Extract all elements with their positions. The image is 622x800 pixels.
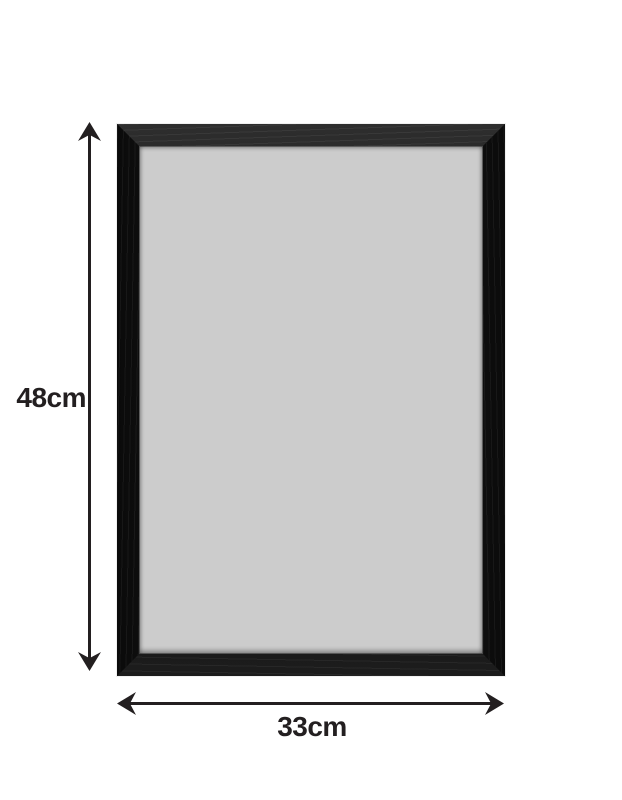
height-dimension-line bbox=[88, 130, 91, 663]
picture-frame bbox=[117, 124, 505, 676]
width-dimension-label: 33cm bbox=[262, 711, 362, 743]
height-dimension-label: 48cm bbox=[0, 382, 86, 414]
frame-opening bbox=[139, 146, 483, 654]
product-dimension-diagram: 48cm 33cm bbox=[0, 0, 622, 800]
width-dimension-line bbox=[125, 702, 496, 705]
